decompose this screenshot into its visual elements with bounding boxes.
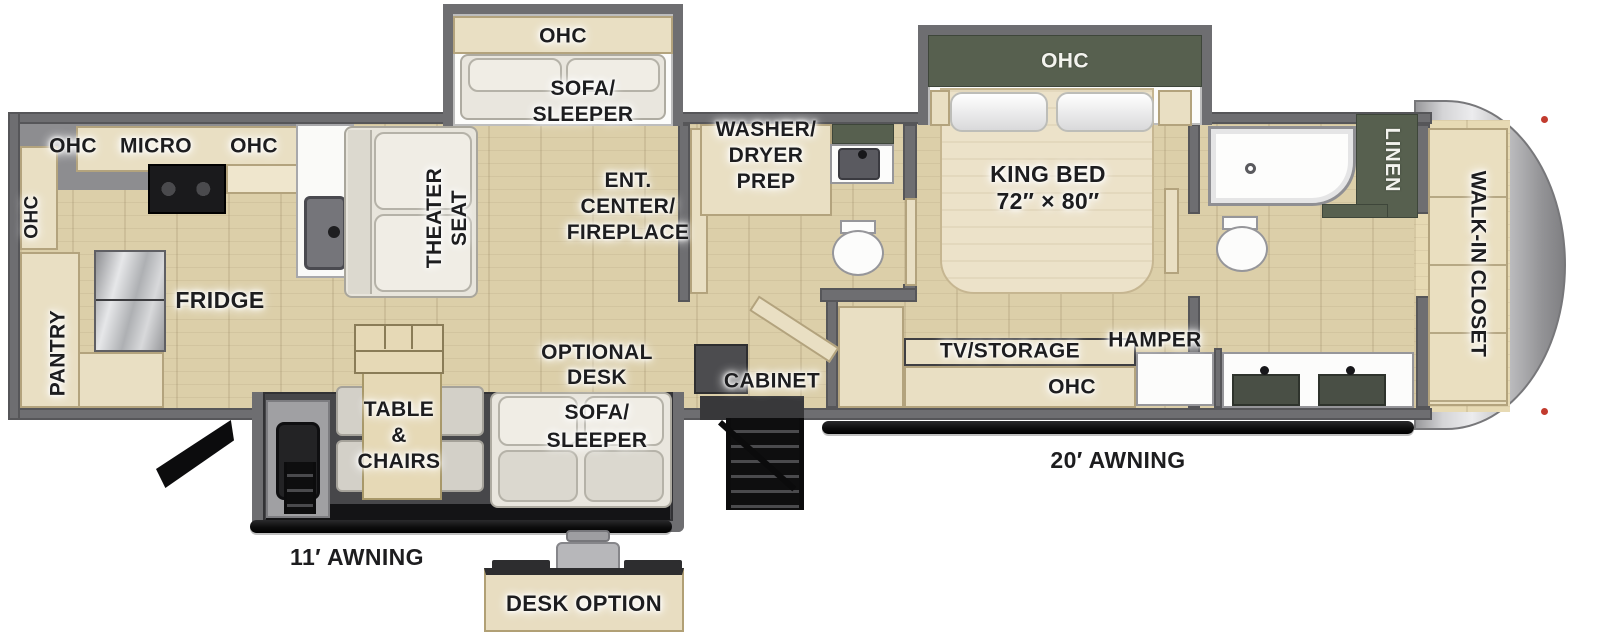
optional-desk-label-line2: DESK <box>541 365 653 390</box>
vanity-sink-left <box>1232 374 1300 406</box>
dinette-label-line3: CHAIRS <box>358 449 441 475</box>
sofa-sleeper-lower-label-line1: SOFA/ <box>547 399 648 427</box>
dinette-hutch <box>354 324 444 374</box>
linen-label: LINEN <box>1380 128 1404 193</box>
bedroom-door <box>905 198 917 286</box>
wall-midbath-right-a <box>903 124 917 200</box>
midbath-faucet <box>858 150 867 159</box>
bedroom-wardrobe <box>838 306 904 408</box>
awning-bar-20ft <box>822 421 1414 434</box>
desk-option-label: DESK OPTION <box>506 591 662 617</box>
theater-seat-label-line1: THEATER <box>422 168 447 268</box>
nightstand-right <box>1158 90 1192 126</box>
nightstand-left <box>930 90 950 126</box>
hamper-box <box>1136 352 1214 406</box>
vanity-faucet-left <box>1260 366 1269 375</box>
wall-hamper-stub <box>1214 348 1222 408</box>
king-bed-label-line1: KING BED <box>990 161 1106 188</box>
washer-dryer-label: WASHER/ DRYER PREP <box>716 117 817 195</box>
sofa-slide-ohc-label: OHC <box>539 23 587 48</box>
sofa-sleeper-top-label-line1: SOFA/ <box>533 76 634 102</box>
ent-center-label-line3: FIREPLACE <box>567 220 690 246</box>
midbath-backsplash <box>832 124 894 144</box>
awning-11-label: 11′ AWNING <box>290 544 424 572</box>
sofa-lower-seat-right <box>584 450 664 502</box>
wall-rearbath-left-a <box>1188 124 1200 214</box>
sofa-sleeper-lower-label: SOFA/ SLEEPER <box>547 399 648 455</box>
washer-dryer-label-line3: PREP <box>716 169 817 195</box>
rearbath-door <box>1164 188 1179 274</box>
cabinet-label: CABINET <box>724 368 820 393</box>
washer-dryer-label-line1: WASHER/ <box>716 117 817 143</box>
hamper-label: HAMPER <box>1108 327 1201 352</box>
kitchen-faucet <box>328 226 340 238</box>
clearance-light-bottom <box>1541 408 1548 415</box>
desk-option-corner-left <box>492 560 550 574</box>
entry-steps-left <box>284 462 316 514</box>
sofa-sleeper-top-label: SOFA/ SLEEPER <box>533 76 634 128</box>
dinette-label: TABLE & CHAIRS <box>358 397 441 475</box>
shower-drain <box>1245 163 1256 174</box>
theater-seat-label-line2: SEAT <box>447 168 472 268</box>
sofa-sleeper-top-label-line2: SLEEPER <box>533 102 634 128</box>
desk-option-chair-back <box>566 530 610 542</box>
tv-storage-label: TV/STORAGE <box>940 338 1080 363</box>
awning-20-label: 20′ AWNING <box>1050 447 1185 475</box>
ent-center-label-line1: ENT. <box>567 168 690 194</box>
rv-floor-plan: OHC OHC MICRO OHC PANTRY FRIDGE THEATER … <box>0 0 1600 632</box>
king-bed-label: KING BED 72″ × 80″ <box>990 161 1106 215</box>
shower <box>1208 126 1356 206</box>
linen-shelf <box>1322 204 1388 218</box>
dinette-label-line2: & <box>358 423 441 449</box>
king-bed-label-line2: 72″ × 80″ <box>990 188 1106 215</box>
vanity-faucet-right <box>1346 366 1355 375</box>
kitchen-ohc-right-label: OHC <box>230 133 278 158</box>
entry-door-open-left <box>156 420 234 488</box>
entry-platform <box>700 396 804 420</box>
pantry-label: PANTRY <box>45 310 70 396</box>
theater-seat-back <box>348 130 372 294</box>
kitchen-micro-label: MICRO <box>120 133 192 158</box>
king-bed-pillow-left <box>950 92 1048 132</box>
midbath-toilet <box>832 230 884 276</box>
walk-in-closet-label: WALK-IN CLOSET <box>1465 171 1490 357</box>
kitchen-ohc-left-label: OHC <box>49 133 97 158</box>
ent-center-label-line2: CENTER/ <box>567 194 690 220</box>
sofa-sleeper-lower-label-line2: SLEEPER <box>547 427 648 455</box>
bedroom-ohc-label: OHC <box>1048 374 1096 399</box>
vanity-sink-right <box>1318 374 1386 406</box>
desk-option-corner-right <box>624 560 682 574</box>
clearance-light-top <box>1541 116 1548 123</box>
washer-dryer-label-line2: DRYER <box>716 143 817 169</box>
optional-desk-label-line1: OPTIONAL <box>541 340 653 365</box>
sofa-lower-seat-left <box>498 450 578 502</box>
rearbath-toilet <box>1216 226 1268 272</box>
fridge-label: FRIDGE <box>175 287 264 315</box>
king-bed-ohc-label: OHC <box>1041 48 1089 73</box>
kitchen-counter <box>226 164 298 194</box>
kitchen-base-cabinet <box>78 352 164 408</box>
ent-center-label: ENT. CENTER/ FIREPLACE <box>567 168 690 246</box>
stove-cooktop <box>148 164 226 214</box>
wall-left <box>8 112 20 420</box>
optional-desk-label: OPTIONAL DESK <box>541 340 653 390</box>
theater-seat-label: THEATER SEAT <box>422 168 472 268</box>
fridge-door-split <box>96 299 164 301</box>
fridge <box>94 250 166 352</box>
king-bed-pillow-right <box>1056 92 1154 132</box>
kitchen-ohc-side-label: OHC <box>22 195 45 238</box>
bedroom-dresser-ohc <box>904 366 1136 408</box>
dinette-label-line1: TABLE <box>358 397 441 423</box>
